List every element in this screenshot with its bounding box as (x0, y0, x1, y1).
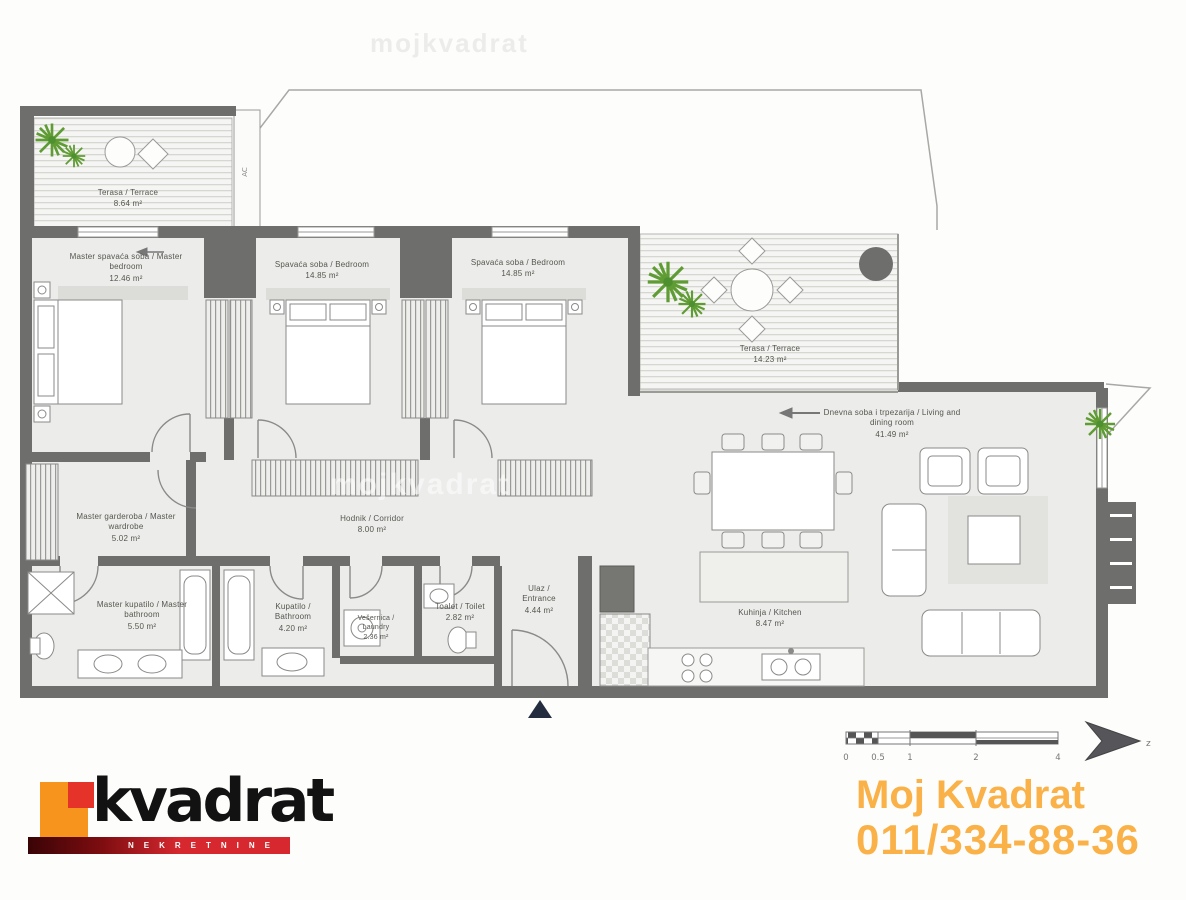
terrace-middle-floor (640, 234, 898, 390)
logo-wordmark: kvadrat (92, 766, 332, 836)
room-label-master-bedroom: Master spavaća soba / Master bedroom 12.… (67, 252, 185, 284)
entrance-marker-icon (528, 700, 552, 718)
floorplan: AC (0, 0, 1186, 770)
north-label: z (1146, 739, 1151, 749)
scale-bar: 0 0.5 1 2 4 (843, 730, 1060, 763)
wall-niche (1106, 502, 1136, 604)
logo-tagline-bar: NEKRETNINE (28, 837, 290, 854)
room-label-terrace-top: Terasa / Terrace 8.64 m² (68, 188, 188, 210)
ac-shaft: AC (234, 110, 260, 228)
logo-red-square-icon (68, 782, 94, 808)
room-label-entrance: Ulaz / Entrance 4.44 m² (511, 584, 567, 616)
room-label-bathroom: Kupatilo / Bathroom 4.20 m² (262, 602, 324, 634)
room-label-master-bathroom: Master kupatilo / Master bathroom 5.50 m… (92, 600, 192, 632)
scale-tick: 4 (1055, 753, 1060, 763)
room-label-laundry: Vešernica / Laundry 2.36 m² (345, 614, 407, 642)
scale-tick: 0.5 (871, 753, 885, 763)
ac-label: AC (241, 167, 249, 177)
scale-tick: 0 (843, 753, 848, 763)
terrace-top-floor (34, 118, 232, 230)
north-arrow-icon: z (1086, 722, 1151, 760)
logo-tagline: NEKRETNINE (128, 841, 280, 850)
contact-name: Moj Kvadrat (856, 774, 1140, 817)
room-label-living-dining: Dnevna soba i trpezarija / Living and di… (812, 408, 972, 440)
contact-phone: 011/334-88-36 (856, 817, 1140, 862)
room-label-master-wardrobe: Master garderoba / Master wardrobe 5.02 … (71, 512, 181, 544)
terrace-tree (859, 247, 893, 281)
room-label-bedroom-2: Spavaća soba / Bedroom 14.85 m² (247, 260, 397, 282)
floorplan-canvas: AC (0, 0, 1186, 770)
room-label-kitchen: Kuhinja / Kitchen 8.47 m² (715, 608, 825, 630)
room-label-toilet: Toalet / Toilet 2.82 m² (435, 602, 485, 624)
kvadrat-logo: kvadrat NEKRETNINE (28, 780, 292, 858)
scale-tick: 2 (973, 753, 978, 763)
room-label-corridor: Hodnik / Corridor 8.00 m² (337, 514, 407, 536)
contact-block: Moj Kvadrat 011/334-88-36 (856, 774, 1140, 863)
room-label-terrace-middle: Terasa / Terrace 14.23 m² (705, 344, 835, 366)
room-label-bedroom-3: Spavaća soba / Bedroom 14.85 m² (443, 258, 593, 280)
scale-tick: 1 (907, 753, 912, 763)
